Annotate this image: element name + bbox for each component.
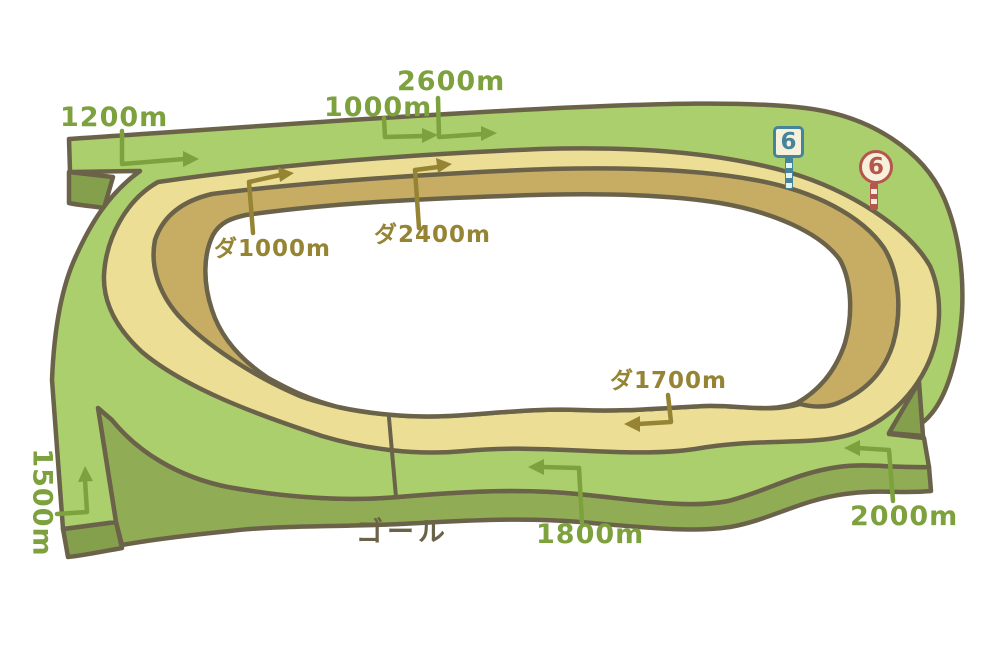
distance-label-dirt-1700m: ダ1700m xyxy=(610,370,727,393)
furlong-marker-blue: 6 xyxy=(773,126,804,158)
distance-label-1800m: 1800m xyxy=(536,521,644,548)
distance-label-1000m: 1000m xyxy=(324,94,432,121)
racecourse-illustration: 1200m 1000m 2600m 1500m 1800m 2000m ダ100… xyxy=(0,0,1000,650)
distance-label-dirt-2400m: ダ2400m xyxy=(374,224,491,247)
furlong-marker-red-pole xyxy=(870,183,878,210)
goal-label: ゴール xyxy=(356,519,449,546)
furlong-marker-blue-pole xyxy=(785,157,793,189)
distance-label-2600m: 2600m xyxy=(397,68,505,95)
distance-label-1200m: 1200m xyxy=(60,104,168,131)
furlong-marker-red: 6 xyxy=(859,150,893,184)
furlong-marker-blue-number: 6 xyxy=(780,131,796,154)
infield xyxy=(205,194,850,416)
track-drawing xyxy=(0,0,1000,650)
distance-label-2000m: 2000m xyxy=(850,503,958,530)
distance-label-1500m: 1500m xyxy=(29,448,56,558)
furlong-marker-red-number: 6 xyxy=(868,156,884,179)
distance-label-dirt-1000m: ダ1000m xyxy=(214,238,331,261)
